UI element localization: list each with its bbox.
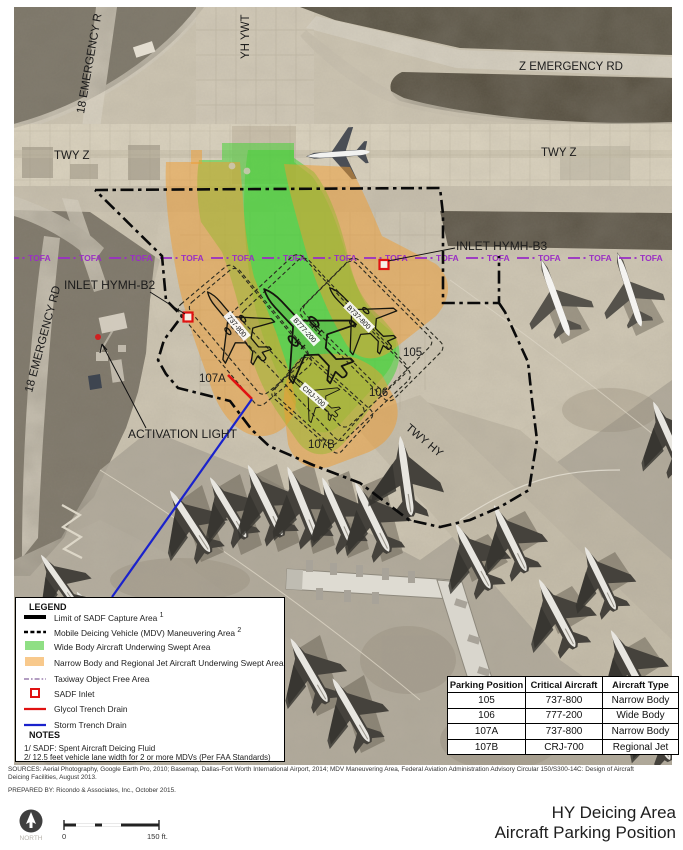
svg-text:INLET HYMH-B3: INLET HYMH-B3 — [456, 239, 547, 253]
svg-text:0: 0 — [62, 832, 66, 841]
svg-text:TOFA: TOFA — [79, 253, 102, 263]
svg-text:107B: 107B — [308, 439, 335, 451]
svg-text:ACTIVATION LIGHT: ACTIVATION LIGHT — [128, 427, 238, 441]
svg-text:TOFA: TOFA — [130, 253, 153, 263]
svg-text:INLET HYMH-B2: INLET HYMH-B2 — [64, 278, 155, 292]
svg-text:TOFA: TOFA — [538, 253, 561, 263]
svg-text:TWY Z: TWY Z — [541, 147, 577, 159]
svg-text:106: 106 — [369, 387, 388, 399]
svg-text:TOFA: TOFA — [640, 253, 663, 263]
svg-text:TOFA: TOFA — [181, 253, 204, 263]
svg-text:Z EMERGENCY RD: Z EMERGENCY RD — [519, 61, 623, 73]
svg-text:TOFA: TOFA — [232, 253, 255, 263]
svg-text:NORTH: NORTH — [20, 835, 43, 842]
svg-text:YH YWT: YH YWT — [240, 14, 252, 59]
svg-text:TWY Z: TWY Z — [54, 150, 90, 162]
svg-text:150 ft.: 150 ft. — [147, 832, 168, 841]
svg-text:105: 105 — [403, 347, 422, 359]
svg-text:TOFA: TOFA — [334, 253, 357, 263]
svg-text:TOFA: TOFA — [436, 253, 459, 263]
svg-text:107A: 107A — [199, 373, 226, 385]
svg-text:TOFA: TOFA — [28, 253, 51, 263]
svg-text:TOFA: TOFA — [589, 253, 612, 263]
svg-text:TOFA: TOFA — [283, 253, 306, 263]
